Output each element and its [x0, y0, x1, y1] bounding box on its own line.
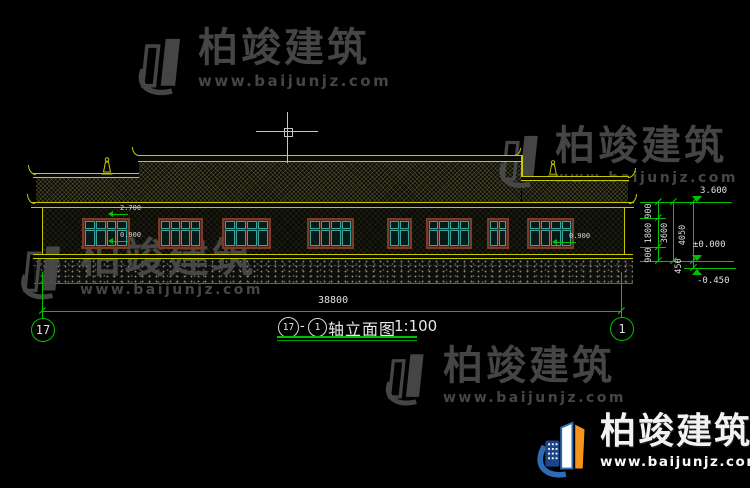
wall-edge-left	[42, 208, 43, 256]
mark-leader	[556, 242, 576, 243]
mark-arrow-icon	[108, 211, 113, 217]
title-underline-thick	[277, 336, 417, 338]
roof-surface-left	[36, 178, 139, 203]
window-sill-mark-left: 0.900	[120, 231, 141, 239]
title-axis-to: 1	[308, 318, 327, 337]
watermark-url: www.baijunjz.com	[443, 390, 626, 406]
crosshair-pickbox	[284, 128, 293, 137]
brand-logo-icon	[136, 28, 190, 102]
dim-chain-segments	[658, 202, 659, 261]
roof-surface-center	[139, 162, 521, 203]
dim-3600: 3600	[660, 218, 670, 248]
title-axis-from: 17	[278, 317, 299, 338]
watermark-url: www.baijunjz.com	[80, 282, 263, 298]
ridge-curl-center-left	[132, 147, 139, 156]
level-ground: ±0.000	[693, 240, 726, 250]
watermark-brand: 柏竣建筑	[555, 126, 738, 166]
wall-edge-right	[624, 208, 625, 256]
level-eave: 3.600	[700, 186, 727, 196]
string-course	[33, 254, 633, 259]
dim-450: 450	[674, 251, 684, 281]
overall-width-dim: 38800	[318, 295, 348, 306]
level-symbol-icon	[692, 196, 702, 202]
roof-ridge-cap	[138, 155, 521, 162]
eave-curl-left-lower	[27, 194, 35, 204]
window-lintel-mark: 2.700	[120, 204, 141, 212]
dim-900-bottom: 900	[644, 240, 654, 270]
brand-logo-icon	[16, 238, 72, 304]
crosshair-v	[287, 112, 288, 163]
mark-leader	[112, 241, 128, 242]
watermark-brand: 柏竣建筑	[443, 346, 626, 386]
roof-finial-icon	[546, 160, 560, 178]
brand-name: 柏竣建筑	[600, 414, 750, 450]
overall-dim-line	[42, 311, 622, 312]
brand-logo: 柏竣建筑 www.baijunjz.com	[536, 414, 750, 482]
watermark-top-right: 柏竣建筑 www.baijunjz.com	[497, 126, 738, 194]
mark-arrow-icon	[108, 238, 113, 244]
title-underline-thin	[277, 340, 417, 341]
roof-step-line	[521, 155, 523, 177]
watermark-top-left: 柏竣建筑 www.baijunjz.com	[136, 28, 391, 102]
mark-arrow-icon	[552, 239, 557, 245]
watermark-brand: 柏竣建筑	[198, 28, 391, 68]
cad-viewport: 柏竣建筑 www.baijunjz.com 柏竣建筑 www.baijunjz.…	[0, 0, 750, 488]
brand-logo-icon	[381, 346, 435, 410]
axis-bubble-17: 17	[31, 318, 55, 342]
watermark-url: www.baijunjz.com	[198, 72, 391, 90]
window-sill-mark-right: 0.900	[569, 232, 590, 240]
brand-logo-icon	[536, 414, 592, 482]
roof-ridge-left	[33, 173, 139, 178]
roof-ridge-right	[521, 176, 629, 181]
level-symbol-icon	[692, 255, 702, 261]
brand-url: www.baijunjz.com	[600, 454, 750, 470]
level-symbol-icon	[692, 269, 702, 275]
mark-leader	[112, 214, 128, 215]
watermark-bottom-center: 柏竣建筑 www.baijunjz.com	[381, 346, 626, 410]
title-separator: -	[300, 319, 305, 334]
level-base: -0.450	[697, 276, 730, 286]
roof-finial-icon	[100, 157, 114, 176]
dim-4050: 4050	[678, 220, 688, 250]
level-line-ground	[640, 261, 734, 262]
eave-curl-right-lower	[629, 194, 637, 204]
eave-curl-left-upper	[28, 165, 36, 175]
watermark-center: 柏竣建筑 www.baijunjz.com	[16, 238, 263, 304]
axis-bubble-1: 1	[610, 317, 634, 341]
drawing-scale: 1:100	[394, 317, 437, 335]
